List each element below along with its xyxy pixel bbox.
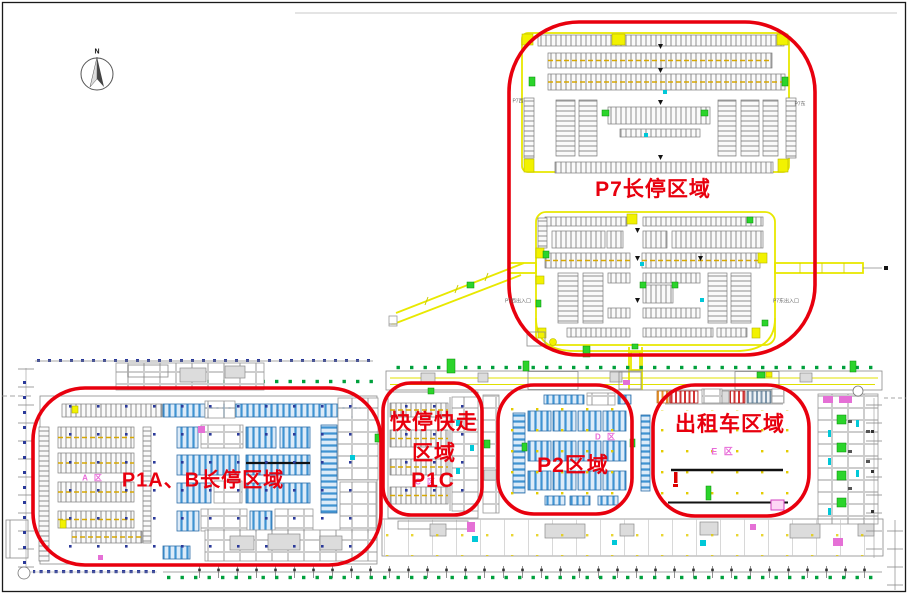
- p7-upper-parking-block: [522, 33, 796, 173]
- plan-drawing: [0, 0, 908, 594]
- p7-lower-parking-block: [527, 212, 775, 351]
- zone-d-marker: D 区: [595, 432, 617, 443]
- p7-region-label: P7长停区域: [595, 173, 711, 203]
- p7-west-entrance-label: P7西出入口: [505, 298, 531, 305]
- p7-west-label: P7西: [512, 98, 523, 105]
- north-compass-icon: [81, 57, 113, 90]
- bottom-service-band: [382, 519, 883, 556]
- p7-east-label: P7东: [794, 101, 805, 108]
- compass-north-label: N: [94, 49, 99, 56]
- zone-e-marker: E 区: [711, 445, 735, 458]
- p2-region-label: P2区域: [537, 449, 609, 479]
- p7-east-entrance-label: P7东出入口: [773, 298, 799, 305]
- zone-a-marker: A 区: [82, 473, 104, 484]
- taxi-region-label: 出租车区域: [675, 408, 785, 438]
- p1c-region-label-line2: 区域: [412, 437, 456, 467]
- p1c-region-label-line1: 快停快走: [390, 406, 478, 436]
- parking-plan-screenshot: N A 区 C 区 D 区 E 区 P7西 P7东 P7西出入口 P7东出入口 …: [0, 0, 908, 594]
- p1ab-region-label: P1A、B长停区域: [122, 464, 284, 493]
- p1c-region-label-line3: P1C: [411, 469, 455, 493]
